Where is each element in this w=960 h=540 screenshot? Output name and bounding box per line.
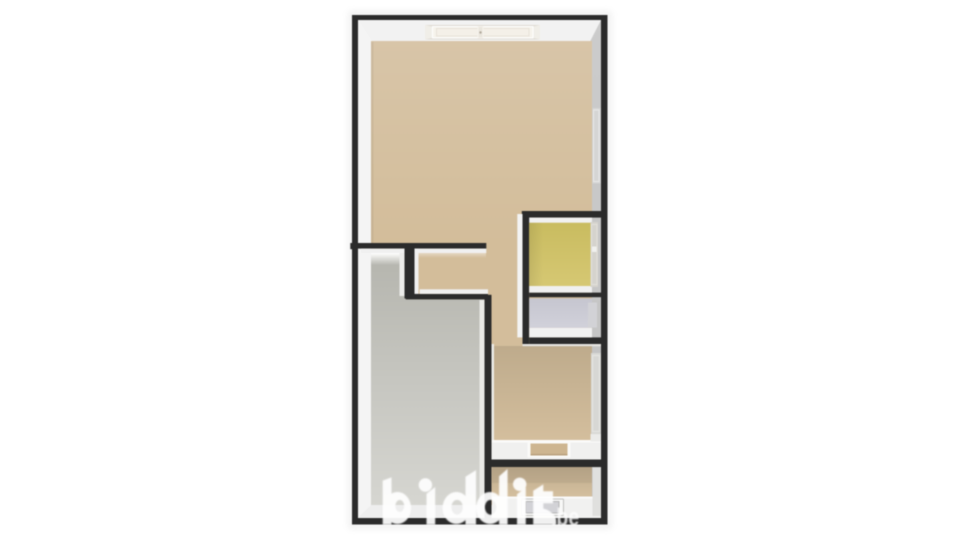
svg-text:.be: .be	[551, 503, 579, 531]
